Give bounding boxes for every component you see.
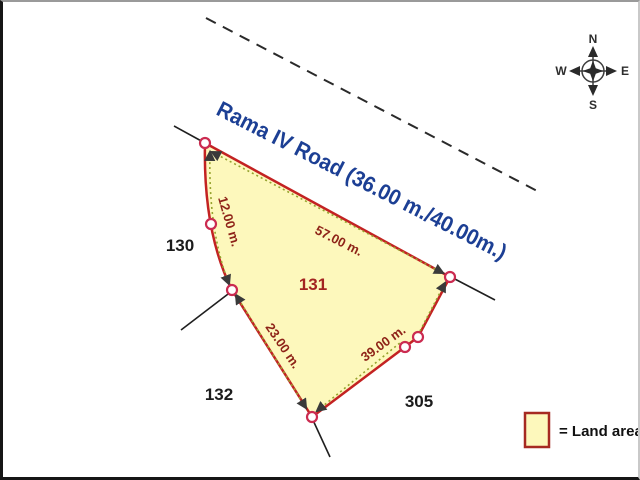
survey-drawing: Rama IV Road (36.00 m./40.00m.) 12.00 m.… — [3, 2, 640, 480]
survey-marker-south — [307, 412, 317, 422]
parcel-number-132: 132 — [205, 385, 233, 404]
survey-marker-southeast-upper — [413, 332, 423, 342]
boundary-extension-line-east — [451, 277, 495, 300]
compass-north-label: N — [589, 32, 598, 46]
boundary-extension-line-south — [312, 418, 330, 457]
compass-south-label: S — [589, 98, 597, 112]
parcel-number-131: 131 — [299, 275, 327, 294]
parcel-number-130: 130 — [166, 236, 194, 255]
legend-land-area-label: = Land area — [559, 423, 640, 440]
survey-marker-northwest — [200, 138, 210, 148]
land-parcel-131-boundary — [205, 143, 450, 417]
survey-marker-southeast-lower — [400, 342, 410, 352]
legend: = Land area — [525, 413, 640, 447]
compass-east-arrow-icon — [606, 66, 617, 76]
compass-rose-icon: N S W E — [555, 32, 629, 112]
parcel-number-305: 305 — [405, 392, 433, 411]
survey-marker-west — [227, 285, 237, 295]
survey-marker-east — [445, 272, 455, 282]
legend-land-area-swatch — [525, 413, 549, 447]
compass-west-arrow-icon — [569, 66, 580, 76]
compass-east-label: E — [621, 64, 629, 78]
compass-west-label: W — [555, 64, 567, 78]
land-survey-diagram: Rama IV Road (36.00 m./40.00m.) 12.00 m.… — [0, 0, 640, 480]
survey-marker-west-curve — [206, 219, 216, 229]
boundary-extension-line-west — [181, 291, 232, 330]
compass-south-arrow-icon — [588, 85, 598, 96]
compass-north-arrow-icon — [588, 46, 598, 57]
road-centerline-dashed-line — [206, 18, 541, 193]
